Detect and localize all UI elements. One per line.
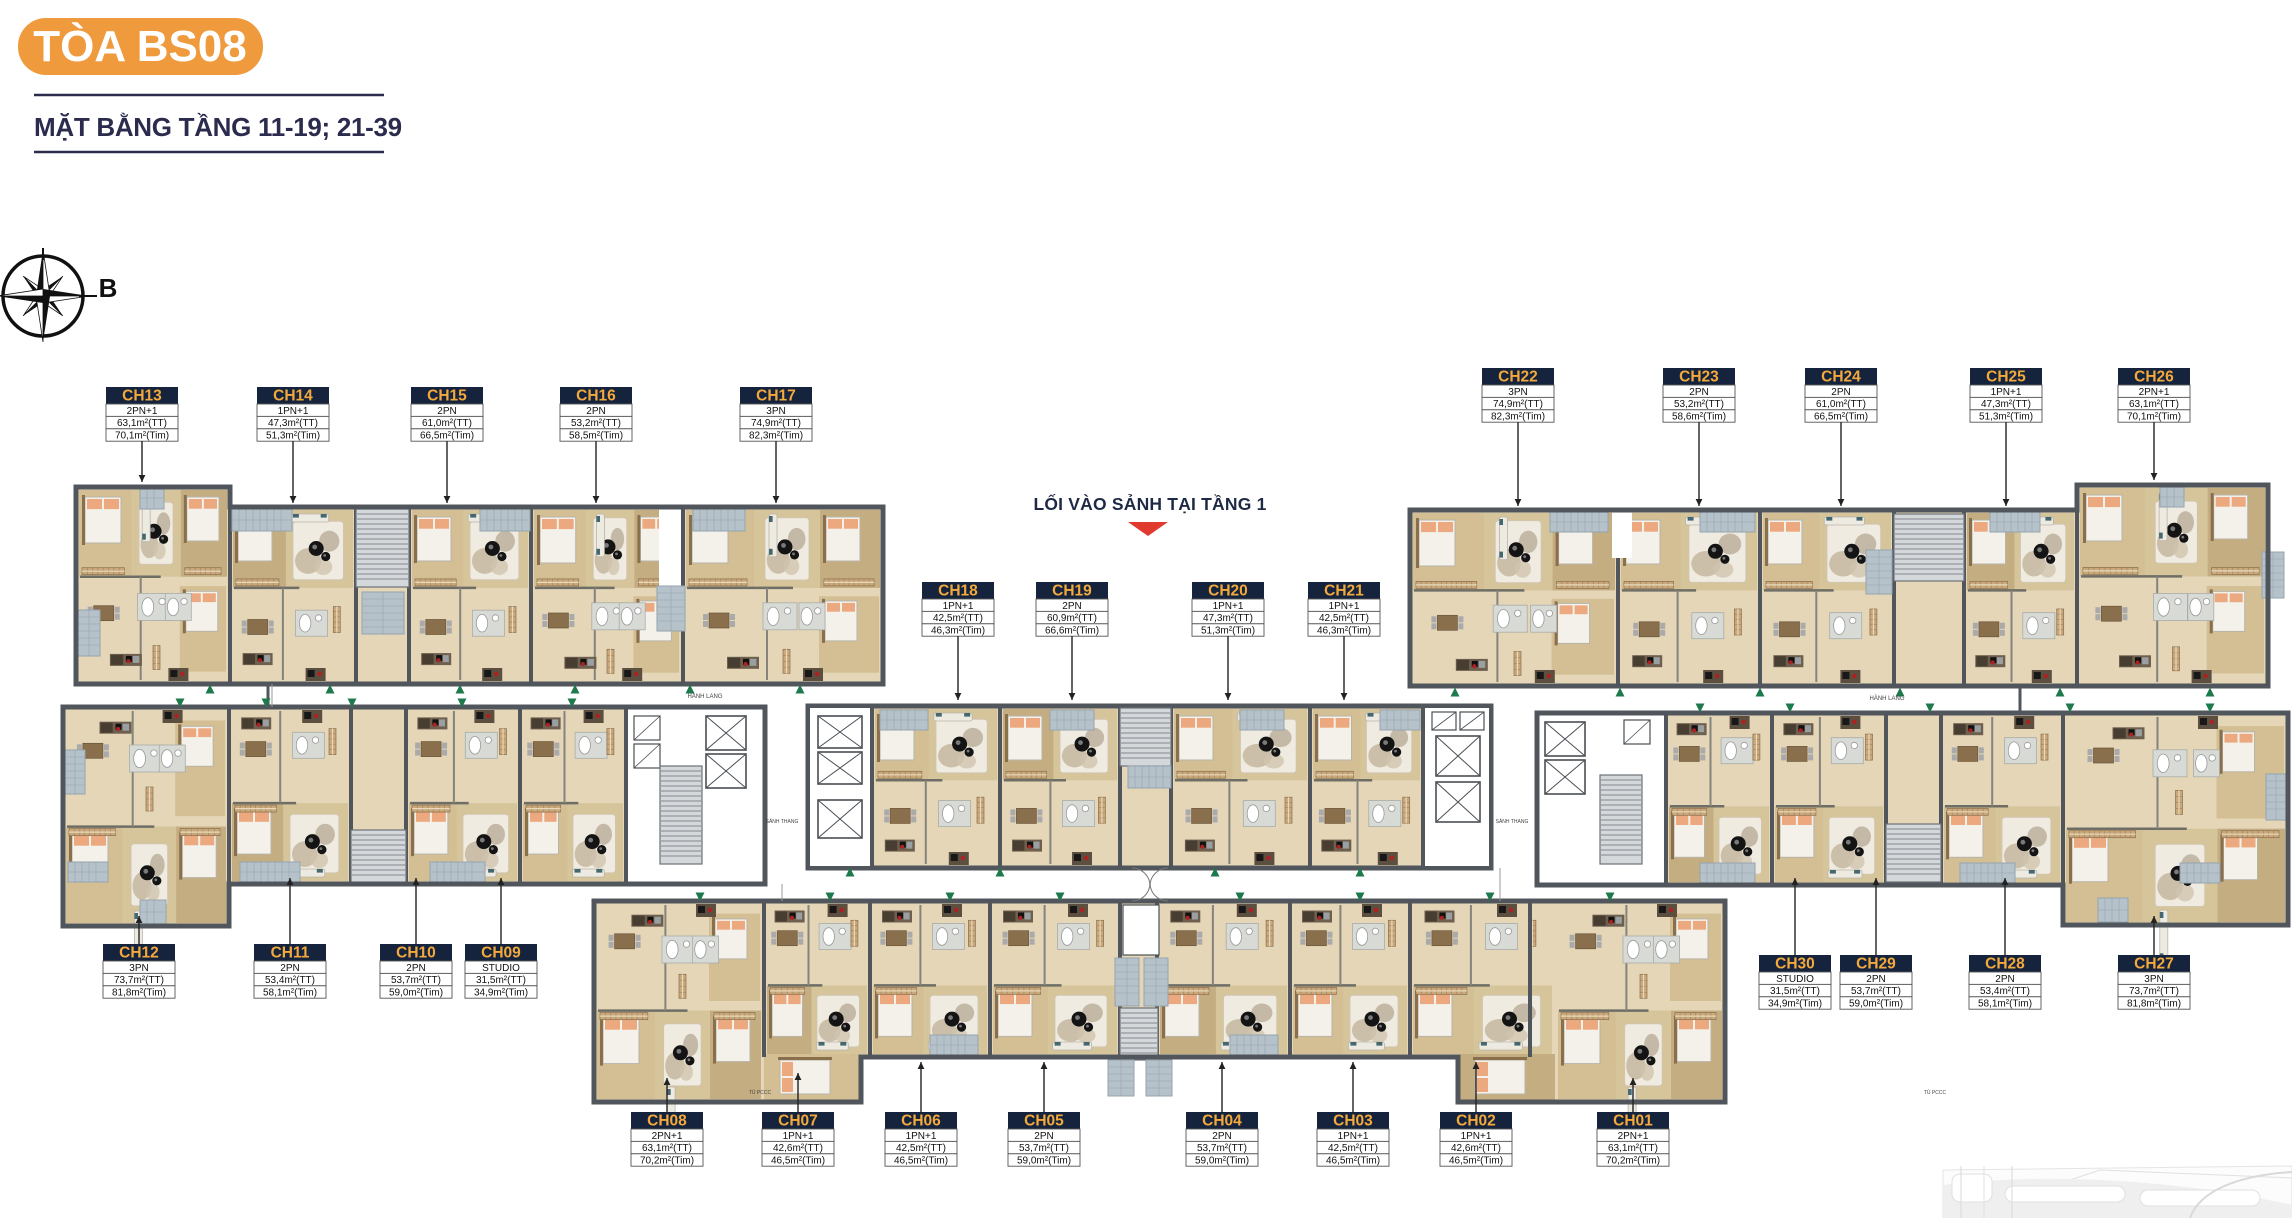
svg-text:CH06: CH06 xyxy=(901,1113,941,1130)
svg-text:1PN+1: 1PN+1 xyxy=(278,406,309,417)
svg-text:2PN: 2PN xyxy=(1212,1131,1231,1142)
svg-text:CH22: CH22 xyxy=(1498,369,1538,386)
svg-text:42,5m²(TT): 42,5m²(TT) xyxy=(1319,613,1369,624)
svg-text:53,7m²(TT): 53,7m²(TT) xyxy=(1851,986,1901,997)
svg-text:63,1m²(TT): 63,1m²(TT) xyxy=(117,418,167,429)
svg-text:61,0m²(TT): 61,0m²(TT) xyxy=(1816,399,1866,410)
svg-text:1PN+1: 1PN+1 xyxy=(1338,1131,1369,1142)
svg-text:53,2m²(TT): 53,2m²(TT) xyxy=(1674,399,1724,410)
svg-text:51,3m²(Tim): 51,3m²(Tim) xyxy=(1979,412,2033,423)
svg-text:CH03: CH03 xyxy=(1333,1113,1373,1130)
svg-text:HÀNH LANG: HÀNH LANG xyxy=(687,693,722,700)
svg-text:74,9m²(TT): 74,9m²(TT) xyxy=(1493,399,1543,410)
svg-text:60,9m²(TT): 60,9m²(TT) xyxy=(1047,613,1097,624)
svg-text:82,3m²(Tim): 82,3m²(Tim) xyxy=(749,431,803,442)
svg-text:TỦ PCCC: TỦ PCCC xyxy=(1924,1089,1947,1096)
svg-text:70,1m²(Tim): 70,1m²(Tim) xyxy=(2127,412,2181,423)
svg-text:MẶT BẰNG TẦNG 11-19; 21-39: MẶT BẰNG TẦNG 11-19; 21-39 xyxy=(34,112,402,142)
svg-text:STUDIO: STUDIO xyxy=(482,963,520,974)
svg-text:2PN: 2PN xyxy=(437,406,456,417)
svg-text:81,8m²(Tim): 81,8m²(Tim) xyxy=(112,988,166,999)
svg-text:53,7m²(TT): 53,7m²(TT) xyxy=(391,975,441,986)
svg-text:53,7m²(TT): 53,7m²(TT) xyxy=(1197,1143,1247,1154)
svg-text:46,5m²(Tim): 46,5m²(Tim) xyxy=(1326,1156,1380,1167)
svg-text:CH13: CH13 xyxy=(122,388,162,405)
svg-text:66,5m²(Tim): 66,5m²(Tim) xyxy=(1814,412,1868,423)
svg-text:CH30: CH30 xyxy=(1775,956,1815,973)
svg-text:42,5m²(TT): 42,5m²(TT) xyxy=(1328,1143,1378,1154)
svg-text:70,1m²(Tim): 70,1m²(Tim) xyxy=(115,431,169,442)
svg-text:CH16: CH16 xyxy=(576,388,616,405)
svg-text:2PN: 2PN xyxy=(1866,974,1885,985)
svg-text:58,1m²(Tim): 58,1m²(Tim) xyxy=(263,988,317,999)
svg-text:63,1m²(TT): 63,1m²(TT) xyxy=(642,1143,692,1154)
svg-text:CH24: CH24 xyxy=(1821,369,1861,386)
svg-text:82,3m²(Tim): 82,3m²(Tim) xyxy=(1491,412,1545,423)
svg-text:47,3m²(TT): 47,3m²(TT) xyxy=(1203,613,1253,624)
svg-text:58,5m²(Tim): 58,5m²(Tim) xyxy=(569,431,623,442)
svg-text:63,1m²(TT): 63,1m²(TT) xyxy=(2129,399,2179,410)
svg-text:46,5m²(Tim): 46,5m²(Tim) xyxy=(1449,1156,1503,1167)
svg-text:2PN: 2PN xyxy=(1034,1131,1053,1142)
svg-text:HÀNH LANG: HÀNH LANG xyxy=(1869,695,1904,702)
svg-text:CH28: CH28 xyxy=(1985,956,2025,973)
svg-text:2PN: 2PN xyxy=(1995,974,2014,985)
svg-text:46,3m²(Tim): 46,3m²(Tim) xyxy=(931,626,985,637)
svg-text:CH05: CH05 xyxy=(1024,1113,1064,1130)
svg-text:70,2m²(Tim): 70,2m²(Tim) xyxy=(640,1156,694,1167)
svg-text:CH21: CH21 xyxy=(1324,583,1364,600)
svg-text:59,0m²(Tim): 59,0m²(Tim) xyxy=(1849,999,1903,1010)
svg-text:31,5m²(TT): 31,5m²(TT) xyxy=(476,975,526,986)
svg-text:TÒA BS08: TÒA BS08 xyxy=(33,21,247,71)
svg-text:42,6m²(TT): 42,6m²(TT) xyxy=(773,1143,823,1154)
svg-text:2PN: 2PN xyxy=(280,963,299,974)
svg-text:CH09: CH09 xyxy=(481,945,521,962)
svg-text:CH12: CH12 xyxy=(119,945,159,962)
svg-text:2PN+1: 2PN+1 xyxy=(652,1131,683,1142)
svg-text:73,7m²(TT): 73,7m²(TT) xyxy=(2129,986,2179,997)
svg-text:2PN+1: 2PN+1 xyxy=(1618,1131,1649,1142)
svg-text:51,3m²(Tim): 51,3m²(Tim) xyxy=(1201,626,1255,637)
svg-text:42,6m²(TT): 42,6m²(TT) xyxy=(1451,1143,1501,1154)
svg-text:1PN+1: 1PN+1 xyxy=(1991,387,2022,398)
svg-text:CH08: CH08 xyxy=(647,1113,687,1130)
svg-text:CH17: CH17 xyxy=(756,388,796,405)
svg-text:63,1m²(TT): 63,1m²(TT) xyxy=(1608,1143,1658,1154)
svg-text:53,4m²(TT): 53,4m²(TT) xyxy=(265,975,315,986)
svg-text:34,9m²(Tim): 34,9m²(Tim) xyxy=(1768,999,1822,1010)
svg-text:CH15: CH15 xyxy=(427,388,467,405)
svg-text:59,0m²(Tim): 59,0m²(Tim) xyxy=(1195,1156,1249,1167)
svg-text:61,0m²(TT): 61,0m²(TT) xyxy=(422,418,472,429)
svg-text:SẢNH THANG: SẢNH THANG xyxy=(1496,818,1529,825)
svg-text:CH19: CH19 xyxy=(1052,583,1092,600)
svg-text:3PN: 3PN xyxy=(1508,387,1527,398)
svg-text:46,5m²(Tim): 46,5m²(Tim) xyxy=(771,1156,825,1167)
svg-text:3PN: 3PN xyxy=(2144,974,2163,985)
svg-text:STUDIO: STUDIO xyxy=(1776,974,1814,985)
svg-text:74,9m²(TT): 74,9m²(TT) xyxy=(751,418,801,429)
svg-text:CH02: CH02 xyxy=(1456,1113,1496,1130)
svg-text:53,2m²(TT): 53,2m²(TT) xyxy=(571,418,621,429)
svg-text:3PN: 3PN xyxy=(766,406,785,417)
svg-text:51,3m²(Tim): 51,3m²(Tim) xyxy=(266,431,320,442)
svg-text:31,5m²(TT): 31,5m²(TT) xyxy=(1770,986,1820,997)
svg-text:3PN: 3PN xyxy=(129,963,148,974)
svg-text:1PN+1: 1PN+1 xyxy=(1329,601,1360,612)
svg-text:CH20: CH20 xyxy=(1208,583,1248,600)
svg-text:66,6m²(Tim): 66,6m²(Tim) xyxy=(1045,626,1099,637)
svg-text:58,6m²(Tim): 58,6m²(Tim) xyxy=(1672,412,1726,423)
svg-text:B: B xyxy=(99,273,118,303)
svg-text:66,5m²(Tim): 66,5m²(Tim) xyxy=(420,431,474,442)
svg-text:SẢNH THANG: SẢNH THANG xyxy=(766,818,799,825)
svg-text:46,3m²(Tim): 46,3m²(Tim) xyxy=(1317,626,1371,637)
svg-text:2PN: 2PN xyxy=(1062,601,1081,612)
svg-text:LỐI VÀO SẢNH TẠI TẦNG 1: LỐI VÀO SẢNH TẠI TẦNG 1 xyxy=(1033,493,1266,514)
svg-text:2PN: 2PN xyxy=(1831,387,1850,398)
svg-text:CH04: CH04 xyxy=(1202,1113,1242,1130)
svg-text:CH11: CH11 xyxy=(271,945,310,962)
svg-text:CH01: CH01 xyxy=(1613,1113,1653,1130)
svg-text:73,7m²(TT): 73,7m²(TT) xyxy=(114,975,164,986)
svg-text:CH25: CH25 xyxy=(1986,369,2026,386)
svg-text:58,1m²(Tim): 58,1m²(Tim) xyxy=(1978,999,2032,1010)
svg-text:CH07: CH07 xyxy=(778,1113,818,1130)
svg-text:CH23: CH23 xyxy=(1679,369,1719,386)
svg-text:1PN+1: 1PN+1 xyxy=(906,1131,937,1142)
svg-text:81,8m²(Tim): 81,8m²(Tim) xyxy=(2127,999,2181,1010)
svg-text:1PN+1: 1PN+1 xyxy=(1213,601,1244,612)
svg-text:2PN: 2PN xyxy=(1689,387,1708,398)
svg-text:70,2m²(Tim): 70,2m²(Tim) xyxy=(1606,1156,1660,1167)
svg-text:59,0m²(Tim): 59,0m²(Tim) xyxy=(389,988,443,999)
svg-text:59,0m²(Tim): 59,0m²(Tim) xyxy=(1017,1156,1071,1167)
svg-text:2PN: 2PN xyxy=(406,963,425,974)
svg-text:CH14: CH14 xyxy=(273,388,313,405)
svg-text:2PN+1: 2PN+1 xyxy=(2139,387,2170,398)
svg-text:1PN+1: 1PN+1 xyxy=(943,601,974,612)
svg-text:2PN+1: 2PN+1 xyxy=(127,406,158,417)
svg-text:1PN+1: 1PN+1 xyxy=(783,1131,814,1142)
svg-text:CH18: CH18 xyxy=(938,583,978,600)
svg-text:42,5m²(TT): 42,5m²(TT) xyxy=(933,613,983,624)
svg-text:53,4m²(TT): 53,4m²(TT) xyxy=(1980,986,2030,997)
svg-text:47,3m²(TT): 47,3m²(TT) xyxy=(1981,399,2031,410)
svg-text:2PN: 2PN xyxy=(586,406,605,417)
svg-text:CH27: CH27 xyxy=(2134,956,2174,973)
svg-text:42,5m²(TT): 42,5m²(TT) xyxy=(896,1143,946,1154)
svg-text:1PN+1: 1PN+1 xyxy=(1461,1131,1492,1142)
svg-text:TỦ PCCC: TỦ PCCC xyxy=(749,1089,772,1096)
svg-text:34,9m²(Tim): 34,9m²(Tim) xyxy=(474,988,528,999)
svg-text:CH29: CH29 xyxy=(1856,956,1896,973)
svg-text:CH10: CH10 xyxy=(396,945,436,962)
svg-text:47,3m²(TT): 47,3m²(TT) xyxy=(268,418,318,429)
svg-text:53,7m²(TT): 53,7m²(TT) xyxy=(1019,1143,1069,1154)
svg-text:CH26: CH26 xyxy=(2134,369,2174,386)
svg-text:46,5m²(Tim): 46,5m²(Tim) xyxy=(894,1156,948,1167)
